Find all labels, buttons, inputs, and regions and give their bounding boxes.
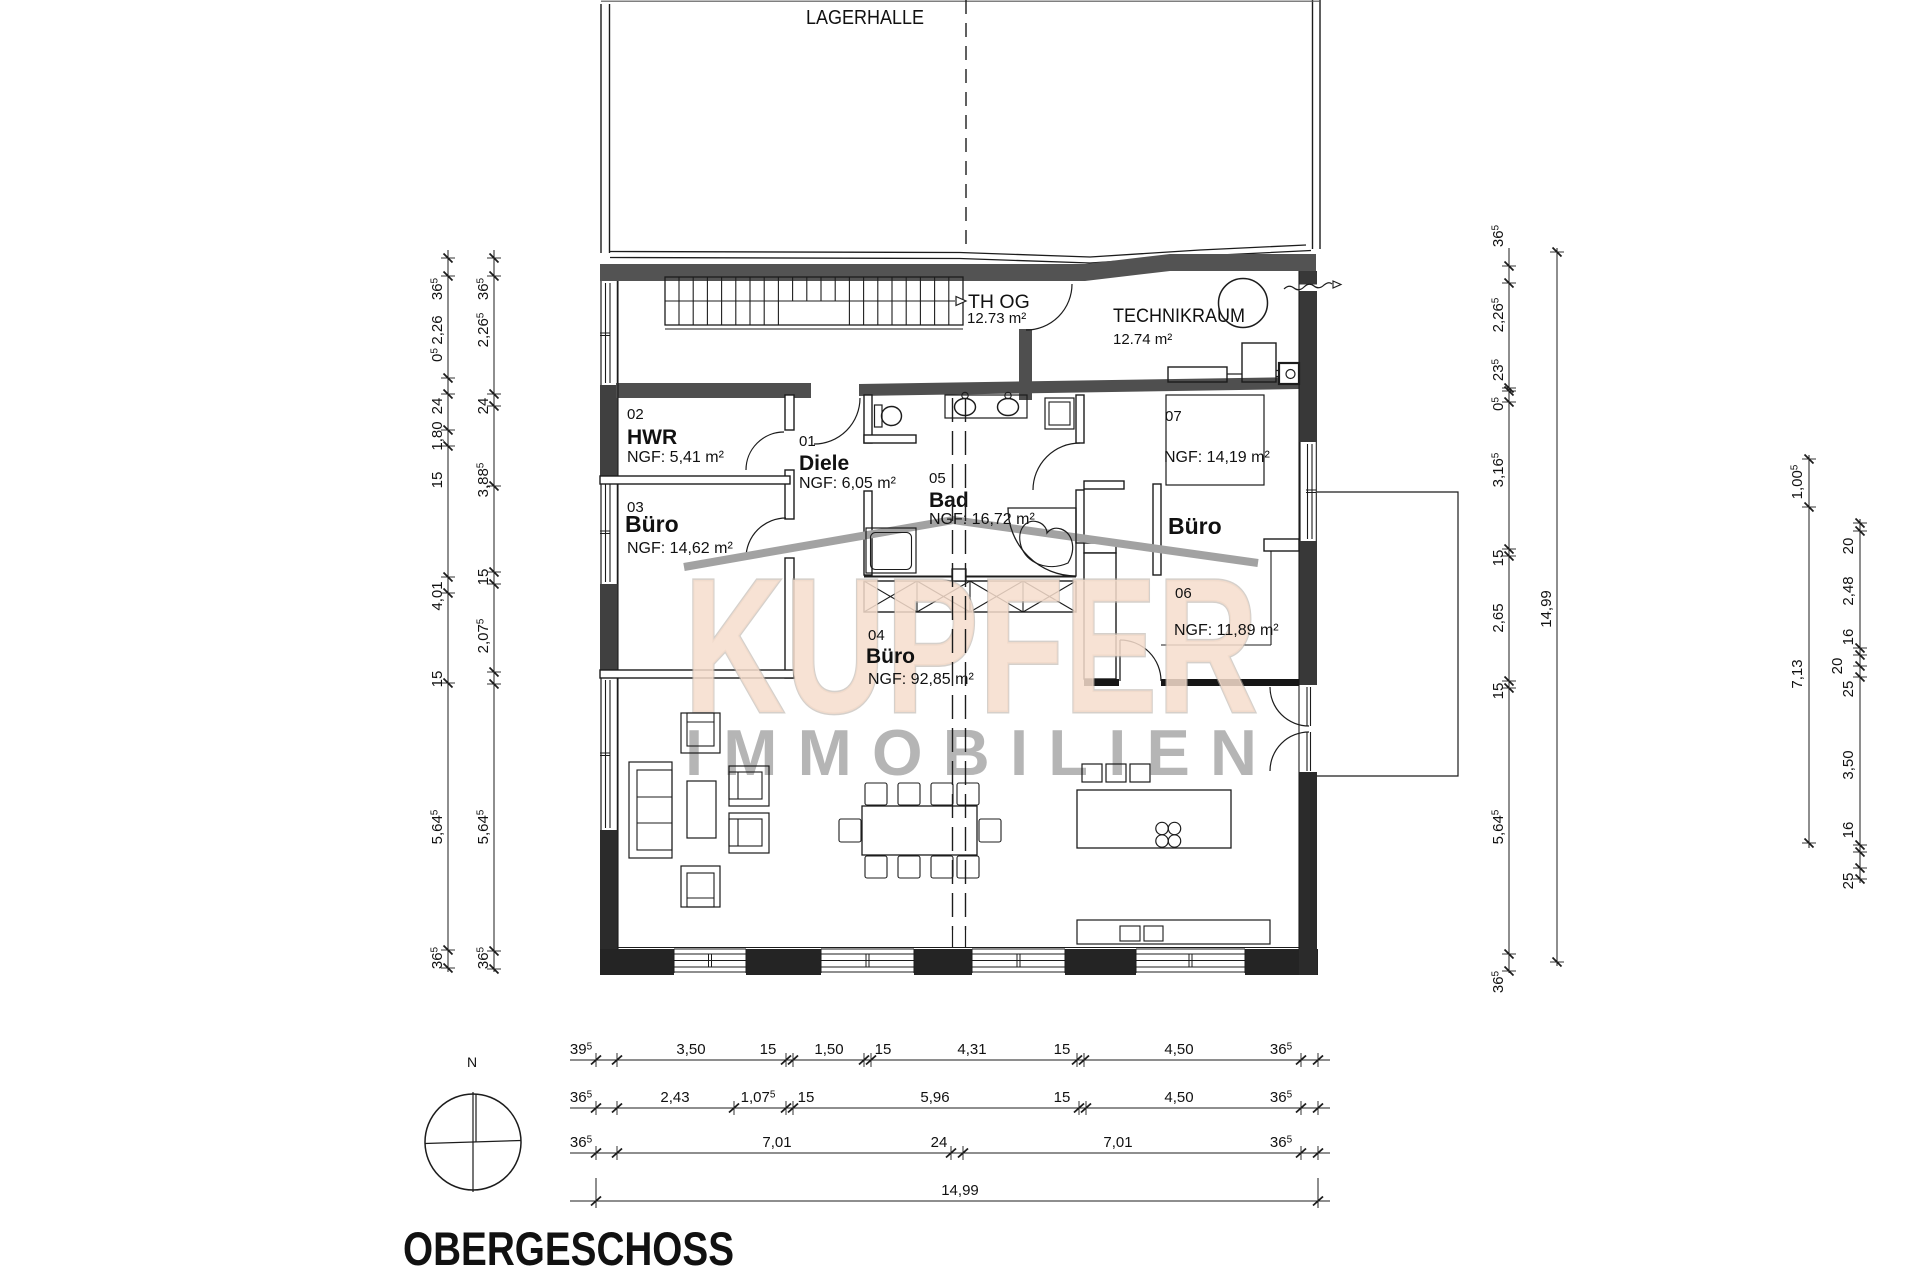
svg-text:NGF: 92,85 m²: NGF: 92,85 m² <box>868 671 974 688</box>
svg-text:5,645: 5,645 <box>429 809 446 844</box>
svg-text:Büro: Büro <box>866 645 915 668</box>
svg-text:05: 05 <box>1490 397 1507 411</box>
svg-text:16: 16 <box>1840 822 1857 839</box>
svg-text:Büro: Büro <box>1168 513 1222 539</box>
svg-text:Bad: Bad <box>929 489 969 512</box>
svg-text:365: 365 <box>570 1089 593 1106</box>
svg-text:365: 365 <box>475 946 492 969</box>
svg-text:OBERGESCHOSS: OBERGESCHOSS <box>403 1222 734 1275</box>
svg-text:24: 24 <box>429 398 446 415</box>
svg-text:IMMOBILIEN: IMMOBILIEN <box>685 716 1257 789</box>
svg-text:15: 15 <box>875 1041 892 1058</box>
svg-text:Büro: Büro <box>625 511 679 537</box>
svg-text:15: 15 <box>1054 1041 1071 1058</box>
svg-text:15: 15 <box>760 1041 777 1058</box>
svg-text:NGF: 6,05 m²: NGF: 6,05 m² <box>799 475 897 492</box>
svg-text:365: 365 <box>1490 224 1507 247</box>
svg-text:5,96: 5,96 <box>920 1089 949 1106</box>
svg-text:14,99: 14,99 <box>1538 590 1555 628</box>
svg-text:N: N <box>467 1054 477 1070</box>
svg-text:NGF: 11,89 m²: NGF: 11,89 m² <box>1174 622 1279 639</box>
svg-text:05: 05 <box>429 348 446 362</box>
svg-text:3,885: 3,885 <box>475 462 492 497</box>
svg-text:365: 365 <box>1270 1041 1293 1058</box>
svg-text:15: 15 <box>798 1089 815 1106</box>
svg-text:7,01: 7,01 <box>762 1134 791 1151</box>
svg-text:NGF: 16,72 m²: NGF: 16,72 m² <box>929 511 1035 528</box>
svg-text:3,165: 3,165 <box>1490 452 1507 487</box>
svg-text:2,075: 2,075 <box>475 618 492 653</box>
svg-text:02: 02 <box>627 406 644 423</box>
svg-text:12.74 m²: 12.74 m² <box>1113 331 1172 348</box>
svg-text:7,01: 7,01 <box>1103 1134 1132 1151</box>
svg-text:NGF: 14,62 m²: NGF: 14,62 m² <box>627 540 733 557</box>
svg-text:15: 15 <box>475 569 492 586</box>
svg-text:1,50: 1,50 <box>814 1041 843 1058</box>
svg-text:24: 24 <box>475 398 492 415</box>
svg-text:2,26: 2,26 <box>429 315 446 344</box>
svg-text:01: 01 <box>799 433 816 450</box>
svg-text:4,31: 4,31 <box>957 1041 986 1058</box>
svg-text:NGF: 5,41 m²: NGF: 5,41 m² <box>627 449 725 466</box>
svg-text:06: 06 <box>1175 585 1192 602</box>
svg-text:15: 15 <box>429 472 446 489</box>
svg-text:20: 20 <box>1829 658 1846 675</box>
svg-text:5,645: 5,645 <box>1490 809 1507 844</box>
svg-text:25: 25 <box>1840 681 1857 698</box>
svg-text:2,65: 2,65 <box>1490 603 1507 632</box>
svg-text:Diele: Diele <box>799 452 849 475</box>
svg-text:4,50: 4,50 <box>1164 1041 1193 1058</box>
svg-text:235: 235 <box>1490 358 1507 381</box>
svg-text:20: 20 <box>1840 538 1857 555</box>
svg-text:25: 25 <box>1840 873 1857 890</box>
svg-text:4,01: 4,01 <box>429 581 446 610</box>
svg-text:NGF: 14,19 m²: NGF: 14,19 m² <box>1164 449 1270 466</box>
svg-text:7,13: 7,13 <box>1789 659 1806 688</box>
svg-text:5,645: 5,645 <box>475 809 492 844</box>
svg-text:04: 04 <box>868 627 885 644</box>
svg-text:365: 365 <box>1270 1134 1293 1151</box>
svg-text:365: 365 <box>570 1134 593 1151</box>
svg-text:365: 365 <box>1270 1089 1293 1106</box>
svg-text:07: 07 <box>1165 408 1182 425</box>
svg-text:12.73 m²: 12.73 m² <box>967 310 1026 327</box>
svg-text:15: 15 <box>1490 683 1507 700</box>
svg-text:395: 395 <box>570 1041 593 1058</box>
svg-text:TECHNIKRAUM: TECHNIKRAUM <box>1113 306 1245 327</box>
svg-text:2,43: 2,43 <box>660 1089 689 1106</box>
svg-text:15: 15 <box>1054 1089 1071 1106</box>
svg-text:16: 16 <box>1840 629 1857 646</box>
svg-text:05: 05 <box>929 470 946 487</box>
svg-text:4,50: 4,50 <box>1164 1089 1193 1106</box>
svg-text:1,005: 1,005 <box>1789 464 1806 499</box>
svg-text:24: 24 <box>931 1134 948 1151</box>
svg-text:3,50: 3,50 <box>676 1041 705 1058</box>
svg-text:15: 15 <box>1490 550 1507 567</box>
svg-text:2,48: 2,48 <box>1840 576 1857 605</box>
svg-text:14,99: 14,99 <box>941 1182 979 1199</box>
svg-text:15: 15 <box>429 671 446 688</box>
svg-text:HWR: HWR <box>627 426 677 449</box>
svg-text:LAGERHALLE: LAGERHALLE <box>806 7 924 29</box>
svg-text:365: 365 <box>429 277 446 300</box>
svg-text:2,265: 2,265 <box>475 312 492 347</box>
svg-text:1,80: 1,80 <box>429 421 446 450</box>
svg-text:3,50: 3,50 <box>1840 750 1857 779</box>
svg-text:1,075: 1,075 <box>741 1089 776 1106</box>
svg-text:2,265: 2,265 <box>1490 297 1507 332</box>
svg-text:365: 365 <box>1490 970 1507 993</box>
svg-text:365: 365 <box>475 277 492 300</box>
